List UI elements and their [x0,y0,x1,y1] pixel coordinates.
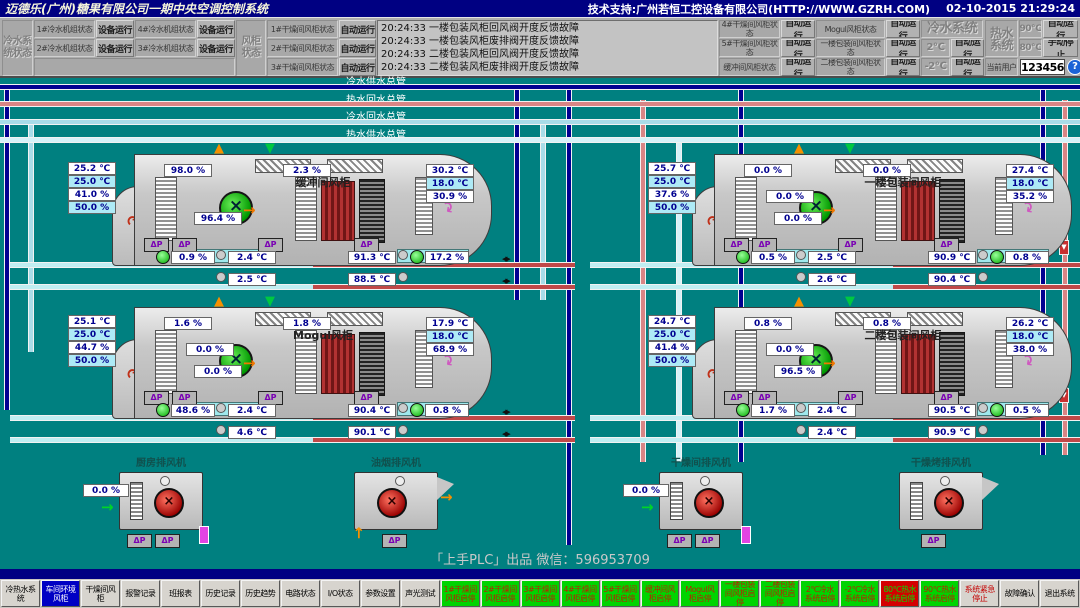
damper-louver [155,330,177,394]
exhaust-fan-icon: × [377,488,407,518]
hot-temp: 90℃ [1019,20,1042,38]
ahu-status-state: 自动运行 [781,20,815,38]
hw-valve-position: 0.5 % [1005,404,1049,417]
scada-screen: 迈德乐(广州)糖果有限公司一期中央空调控制系统 技术支持:广州若恒工控设备有限公… [0,0,1080,608]
btn-history-trend[interactable]: 历史趋势 [241,580,280,607]
temp-sensor-icon [398,272,408,282]
btn-mogul-ahu-toggle[interactable]: Mogul风柜启停 [680,580,719,607]
tab-workshop-ahu[interactable]: 车间环境风柜 [41,580,80,607]
supply-humidity-pv: 30.9 % [426,190,474,203]
btn-alarm-log[interactable]: 报警记录 [121,580,160,607]
ahu-mogul: ↷ ▲ ▼ × → ↷ 25.1 ℃ 25.0 ℃ 44.7 % 50.0 % … [58,303,518,453]
damper-position: 0.0 % [766,343,814,356]
chw-valve-icon [156,403,170,417]
dp-switch: ΔP [838,238,863,252]
fan-damper-position: 0.0 % [83,484,129,497]
damper-position: 96.4 % [194,212,242,225]
alarm-text: 一楼包装风柜废排阀开度反馈故障 [429,35,579,48]
exhaust-up-arrow-icon: ▲ [214,294,224,309]
alarm-text: 一楼包装风柜回风阀开度反馈故障 [429,22,579,35]
dp-switch: ΔP [921,534,946,548]
heating-coil [321,334,355,394]
temp-sensor-icon [398,425,408,435]
chiller-group-label: 冷水系统状态 [2,20,33,76]
fresh-air-down-arrow-icon: ▼ [265,141,275,156]
hot-return-main-pipe [0,101,1080,107]
ahu-status-label: 一楼包装间风柜状态 [816,39,885,57]
return-temp-pv: 25.1 ℃ [68,315,116,328]
hw-valve-position: 0.8 % [1005,251,1049,264]
btn-2c-chiller-toggle[interactable]: 2℃冷水系统启停 [800,580,839,607]
roof-grille [907,312,963,326]
hw-temp: 90.1 ℃ [348,426,396,439]
title-bar: 迈德乐(广州)糖果有限公司一期中央空调控制系统 技术支持:广州若恒工控设备有限公… [0,0,1080,17]
current-user-label: 当前用户 [985,58,1018,76]
chw-temp: 4.6 ℃ [228,426,276,439]
hot-state: 自动运行 [1043,20,1078,38]
cold-state: 自动运行 [951,58,984,76]
fan-label: 干燥烤排风机 [875,454,1007,469]
damper-louver [735,177,757,241]
dp-switch: ΔP [934,238,959,252]
humidity-pv: 41.0 % [68,188,116,201]
btn-80c-hotwater-toggle[interactable]: 80℃热水系统启停 [880,580,919,607]
ahu-status-label: Mogul风柜状态 [816,20,885,38]
roof-grille [907,159,963,173]
chiller-state: 设备运行 [96,39,134,57]
dp-switch: ΔP [155,534,180,548]
hw-valve-icon [990,250,1004,264]
chiller-state: 设备运行 [96,20,134,38]
btn-emergency-stop[interactable]: 系统紧急停止 [960,580,999,607]
temp-sensor-icon [398,403,408,413]
return-temp-pv: 24.7 ℃ [648,315,696,328]
temp-sensor-icon [796,272,806,282]
ahu-status-state: 自动运行 [781,58,815,76]
temp-setpoint[interactable]: 25.0 ℃ [648,328,696,341]
damper-position: 0.0 % [194,365,242,378]
btn-buffer-ahu-toggle[interactable]: 缓冲间风柜启停 [641,580,680,607]
pipe-vertical [4,86,10,410]
damper-louver [155,177,177,241]
inlet-arrow-icon: → [641,498,654,516]
temp-sensor-icon [216,250,226,260]
dp-switch: ΔP [354,238,379,252]
btn-ahu2-toggle[interactable]: 2#干燥间风柜启停 [481,580,520,607]
btn-ahu5-toggle[interactable]: 5#干燥间风柜启停 [601,580,640,607]
btn-param-settings[interactable]: 参数设置 [361,580,400,607]
hot-state: 手动停止 [1043,39,1078,57]
alarm-text: 二楼包装风柜废排阀开度反馈故障 [429,61,579,74]
fan-label: 油烟排风机 [330,454,462,469]
hw-temp: 90.9 ℃ [928,426,976,439]
btn-ahu3-toggle[interactable]: 3#干燥间风柜启停 [521,580,560,607]
empty-cell [34,58,235,76]
hw-valve-position: 0.8 % [425,404,469,417]
damper-position: 0.0 % [186,343,234,356]
hot-supply-main-pipe [0,137,1080,143]
ahu-status-label: 二楼包装间风柜状态 [816,58,885,76]
pipe-vertical [540,120,546,300]
temp-sensor-icon [796,403,806,413]
ahu-floor1-packing: ↷ ▲ ▼ × → ↷ 25.7 ℃ 25.0 ℃ 37.6 % 50.0 % … [638,150,1080,300]
heating-coil [901,334,935,394]
btn-history-log[interactable]: 历史记录 [201,580,240,607]
pipe-vertical [566,86,572,545]
sensor-dot [395,476,405,486]
btn-neg2c-chiller-toggle[interactable]: -2℃冷水系统启停 [840,580,879,607]
damper-position: 0.0 % [744,164,792,177]
alarm-row[interactable]: 20:24:33一楼包装风柜废排阀开度反馈故障 [381,35,714,48]
temp-sensor-icon [796,425,806,435]
airflow-arrow-icon: → [243,354,256,372]
fan-housing: × [899,472,983,530]
supply-temp-pv: 17.9 ℃ [426,317,474,330]
help-icon[interactable]: ? [1067,59,1080,75]
chilled-return-main-pipe [0,119,1080,125]
btn-90c-hotwater-toggle[interactable]: 90℃热水系统启停 [920,580,959,607]
inlet-louver [910,482,923,520]
temp-sensor-icon [978,425,988,435]
supply-temp-setpoint[interactable]: 18.0 ℃ [1006,177,1054,190]
dp-switch: ΔP [258,391,283,405]
chiller-state: 设备运行 [197,39,235,57]
temp-sensor-icon [216,272,226,282]
damper-position: 96.5 % [774,365,822,378]
outlet-cone [982,477,999,500]
pipe-vertical [28,120,34,352]
ahu-floor2-packing: ↷ ▲ ▼ × → ↷ 24.7 ℃ 25.0 ℃ 41.4 % 50.0 % … [638,303,1080,453]
dp-switch: ΔP [667,534,692,548]
roof-grille [327,312,383,326]
alarm-row[interactable]: 20:24:33一楼包装风柜回风阀开度反馈故障 [381,22,714,35]
ahu-status-state: 自动运行 [886,20,920,38]
btn-shift-report[interactable]: 班报表 [161,580,200,607]
ahu-group-label: 风柜状态 [236,20,266,76]
temp-sensor-icon [978,250,988,260]
alarm-text: 二楼包装风柜回风阀开度反馈故障 [429,48,579,61]
chiller-label: 2#冷水机组状态 [34,39,95,57]
indicator-bar [199,526,209,544]
btn-floor1-ahu-toggle[interactable]: 一楼包装间风柜启停 [720,580,759,607]
damper-louver [735,330,757,394]
humidity-setpoint[interactable]: 50.0 % [648,354,696,367]
tab-coldhot-system[interactable]: 冷热水系统 [1,580,40,607]
valve-bowtie-icon: ◀▶ [502,429,509,439]
return-temp-pv: 25.7 ℃ [648,162,696,175]
hw-temp: 90.4 ℃ [348,404,396,417]
damper-position: 0.0 % [774,212,822,225]
bottom-toolbar: 冷热水系统 车间环境风柜 干燥间风柜 报警记录 班报表 历史记录 历史趋势 电路… [0,579,1080,608]
damper-position: 0.0 % [766,190,814,203]
alarm-row[interactable]: 20:24:33二楼包装风柜废排阀开度反馈故障 [381,61,714,74]
damper-position: 0.8 % [744,317,792,330]
status-panel: 冷水系统状态 1#冷水机组状态 设备运行 4#冷水机组状态 设备运行 2#冷水机… [0,17,1080,78]
hot-system-label: 热水系统 [985,20,1018,57]
supply-temp-setpoint[interactable]: 18.0 ℃ [426,177,474,190]
fan-housing: × [659,472,743,530]
humidity-pv: 41.4 % [648,341,696,354]
humidity-pv: 37.6 % [648,188,696,201]
ahu-status-label: 1#干燥间风柜状态 [267,20,338,38]
hw-valve-icon [410,403,424,417]
ahu-status-state: 自动运行 [886,39,920,57]
supply-humidity-pv: 38.0 % [1006,343,1054,356]
supply-temp-setpoint[interactable]: 18.0 ℃ [426,330,474,343]
exhaust-fan-fume: 油烟排风机 × → → ΔP [340,452,452,548]
ahu-title: 一楼包装间风柜 [818,174,988,190]
btn-exit-system[interactable]: 退出系统 [1040,580,1079,607]
temp-setpoint[interactable]: 25.0 ℃ [68,328,116,341]
exhaust-fan-icon: × [154,488,184,518]
roof-grille [327,159,383,173]
valve-bowtie-icon: ◀▶ [502,407,509,417]
ahu-status-state: 自动运行 [886,58,920,76]
ahu-status-state: 自动运行 [781,39,815,57]
temp-sensor-icon [216,403,226,413]
dp-switch: ΔP [172,391,197,405]
humidity-setpoint[interactable]: 50.0 % [648,201,696,214]
ahu-status-label: 2#干燥间风柜状态 [267,39,338,57]
chw-valve-position: 0.9 % [171,251,215,264]
ahu-buffer-room: ↷ ▲ ▼ × → ↷ 25.2 ℃ 25.0 ℃ 41.0 % 50.0 % … [58,150,518,300]
alarm-list[interactable]: 20:24:33一楼包装风柜回风阀开度反馈故障 20:24:33一楼包装风柜废排… [377,20,718,76]
exhaust-up-arrow-icon: ▲ [794,141,804,156]
return-temp-pv: 25.2 ℃ [68,162,116,175]
btn-fault-ack[interactable]: 故障确认 [1000,580,1039,607]
exhaust-fan-icon: × [934,488,964,518]
btn-ahu4-toggle[interactable]: 4#干燥间风柜启停 [561,580,600,607]
supply-humidity-pv: 68.9 % [426,343,474,356]
support-text: 技术支持:广州若恒工控设备有限公司(HTTP://WWW.GZRH.COM) [588,1,930,17]
hw-valve-icon [990,403,1004,417]
ahu-status-state: 自动运行 [339,39,376,57]
fresh-air-down-arrow-icon: ▼ [265,294,275,309]
dp-switch: ΔP [752,238,777,252]
heating-coil [901,181,935,241]
fan-housing: × [119,472,203,530]
dp-switch: ΔP [752,391,777,405]
exhaust-fan-drying-oven: 干燥烤排风机 × ΔP [885,452,997,548]
temp-sensor-icon [796,250,806,260]
ahu-status-label: 5#干燥间风柜状态 [719,39,780,57]
datetime: 02-10-2015 21:29:24 [946,2,1075,15]
ahu-status-state: 自动运行 [339,20,376,38]
supply-humidity-pv: 35.2 % [1006,190,1054,203]
hw-branch-pipe [893,284,1080,290]
btn-io-status[interactable]: I/O状态 [321,580,360,607]
temp-sensor-icon [398,250,408,260]
dp-switch: ΔP [172,238,197,252]
chw-temp: 2.5 ℃ [228,273,276,286]
chiller-state: 设备运行 [197,20,235,38]
chilled-supply-main-pipe [0,84,1080,90]
ahu-status-label: 3#干燥间风柜状态 [267,58,338,76]
dp-switch: ΔP [354,391,379,405]
fresh-air-down-arrow-ic: ▼ [845,141,855,156]
exhaust-up-arrow-icon: ▲ [794,294,804,309]
sensor-dot [940,476,950,486]
btn-sound-light-test[interactable]: 声光测试 [401,580,440,607]
hw-temp: 91.3 ℃ [348,251,396,264]
dp-switch: ΔP [934,391,959,405]
supply-temp-pv: 30.2 ℃ [426,164,474,177]
dp-switch: ΔP [838,391,863,405]
airflow-arrow-icon: → [823,354,836,372]
ahu-title: 二楼包装间风柜 [818,327,988,343]
inlet-arrow-icon: → [349,527,367,540]
fan-housing: × [354,472,438,530]
chw-valve-icon [156,250,170,264]
alarm-time: 20:24:33 [381,22,429,35]
hw-temp: 90.4 ℃ [928,273,976,286]
outlet-arrow-icon: → [440,488,453,506]
chw-valve-icon [736,250,750,264]
ahu-status-label: 4#干燥间风柜状态 [719,20,780,38]
fan-label: 厨房排风机 [95,454,227,469]
temp-sensor-icon [978,403,988,413]
hot-temp: 80℃ [1019,39,1042,57]
chw-temp: 2.4 ℃ [808,426,856,439]
temp-sensor-icon [978,272,988,282]
humidity-setpoint[interactable]: 50.0 % [68,354,116,367]
chiller-label: 4#冷水机组状态 [135,20,196,38]
separator-strip [0,569,1080,579]
ahu-title: 缓冲间风柜 [238,174,408,190]
cold-temp: 2℃ [921,39,950,57]
humidity-pv: 44.7 % [68,341,116,354]
chw-temp: 2.6 ℃ [808,273,856,286]
valve-bowtie-icon: ◀▶ [502,254,509,264]
chw-valve-icon [736,403,750,417]
current-user-value[interactable]: 123456 [1020,59,1065,75]
sensor-dot [700,476,710,486]
chiller-label: 3#冷水机组状态 [135,39,196,57]
credit-text: 「上手PLC」出品 微信：596953709 [0,549,1080,568]
ahu-title: Mogul风柜 [238,327,408,343]
chw-valve-position: 0.5 % [751,251,795,264]
indicator-bar [741,526,751,544]
ahu-status-label: 缓冲间风柜状态 [719,58,780,76]
fan-label: 干燥间排风机 [635,454,767,469]
inlet-louver [130,482,143,520]
damper-position: 98.0 % [164,164,212,177]
hw-valve-icon [410,250,424,264]
alarm-time: 20:24:33 [381,48,429,61]
valve-bowtie-icon: ◀▶ [502,276,509,286]
supply-temp-pv: 27.4 ℃ [1006,164,1054,177]
chiller-label: 1#冷水机组状态 [34,20,95,38]
inlet-louver [670,482,683,520]
dp-switch: ΔP [127,534,152,548]
cold-temp: -2℃ [921,58,950,76]
chw-temp: 2.4 ℃ [228,404,276,417]
fan-damper-position: 0.0 % [623,484,669,497]
chw-temp: 2.5 ℃ [808,251,856,264]
cold-state: 自动运行 [951,39,984,57]
dp-switch: ΔP [382,534,407,548]
chw-valve-position: 1.7 % [751,404,795,417]
damper-position: 1.6 % [164,317,212,330]
dp-switch: ΔP [695,534,720,548]
chw-temp: 2.4 ℃ [808,404,856,417]
humidity-setpoint[interactable]: 50.0 % [68,201,116,214]
fresh-air-down-arrow-icon: ▼ [845,294,855,309]
hw-temp: 90.9 ℃ [928,251,976,264]
supply-temp-pv: 26.2 ℃ [1006,317,1054,330]
hw-valve-position: 17.2 % [425,251,469,264]
exhaust-up-arrow-icon: ▲ [214,141,224,156]
exhaust-fan-icon: × [694,488,724,518]
temp-setpoint[interactable]: 25.0 ℃ [68,175,116,188]
tab-drying-ahu[interactable]: 干燥间风柜 [81,580,120,607]
dp-switch: ΔP [258,238,283,252]
temp-setpoint[interactable]: 25.0 ℃ [648,175,696,188]
cold-system-label: 冷水系统 [921,20,983,38]
supply-temp-setpoint[interactable]: 18.0 ℃ [1006,330,1054,343]
temp-sensor-icon [216,425,226,435]
alarm-time: 20:24:33 [381,35,429,48]
alarm-row[interactable]: 20:24:33二楼包装风柜回风阀开度反馈故障 [381,48,714,61]
inlet-arrow-icon: → [101,498,114,516]
page-title: 迈德乐(广州)糖果有限公司一期中央空调控制系统 [5,0,268,17]
hw-branch-pipe [893,437,1080,443]
hw-temp: 90.5 ℃ [928,404,976,417]
btn-ahu1-toggle[interactable]: 1#干燥间风柜启停 [441,580,480,607]
hw-temp: 88.5 ℃ [348,273,396,286]
airflow-arrow-icon: → [823,201,836,219]
btn-circuit-status[interactable]: 电路状态 [281,580,320,607]
chw-temp: 2.4 ℃ [228,251,276,264]
chw-valve-position: 48.6 % [171,404,215,417]
sensor-dot [160,476,170,486]
heating-coil [321,181,355,241]
btn-floor2-ahu-toggle[interactable]: 二楼包装间风柜启停 [760,580,799,607]
airflow-arrow-icon: → [243,201,256,219]
